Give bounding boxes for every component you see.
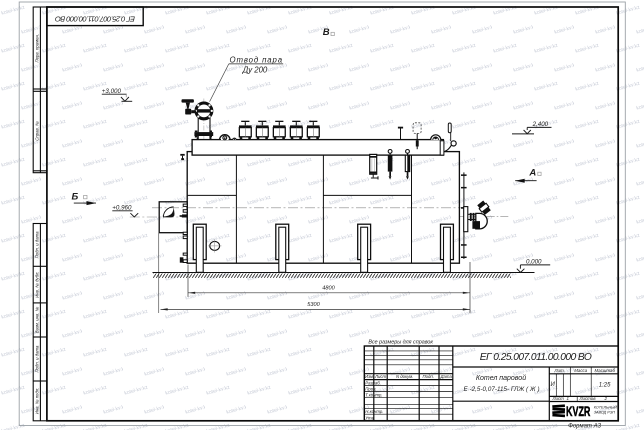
- svg-text:Ду 200: Ду 200: [242, 66, 268, 75]
- svg-text:4800: 4800: [322, 286, 335, 292]
- svg-text:Изм.: Изм.: [365, 374, 374, 379]
- svg-text:Листов: Листов: [579, 396, 597, 401]
- svg-text:KVZR: KVZR: [566, 404, 591, 419]
- svg-text:Подп.: Подп.: [423, 374, 434, 379]
- svg-text:Н.контр.: Н.контр.: [365, 409, 383, 414]
- svg-text:Справ. №: Справ. №: [34, 121, 39, 141]
- svg-text:5300: 5300: [307, 302, 320, 308]
- svg-text:А: А: [528, 167, 536, 178]
- svg-text:1:25: 1:25: [599, 383, 611, 389]
- svg-text:Е -2,5-0,07-115- ГЛЖ ( Ж ): Е -2,5-0,07-115- ГЛЖ ( Ж ): [464, 386, 540, 393]
- svg-text:Лит.: Лит.: [554, 368, 565, 373]
- svg-text:Перв. примен.: Перв. примен.: [34, 34, 39, 63]
- svg-text:ЗАВОД РЭП: ЗАВОД РЭП: [594, 411, 615, 415]
- svg-text:2: 2: [604, 396, 608, 401]
- svg-text:0,000: 0,000: [526, 258, 542, 265]
- svg-text:Подп. и дата: Подп. и дата: [34, 231, 39, 259]
- svg-text:2,400: 2,400: [532, 121, 549, 128]
- svg-text:Отвод пара: Отвод пара: [230, 55, 283, 64]
- svg-text:ЕГ 0.25.007.011.00.000 ВО: ЕГ 0.25.007.011.00.000 ВО: [480, 352, 592, 363]
- svg-text:КОТЕЛЬНЫЙ: КОТЕЛЬНЫЙ: [594, 406, 618, 410]
- svg-text:Масса: Масса: [574, 368, 588, 373]
- svg-text:В: В: [323, 27, 330, 38]
- svg-text:Лист: Лист: [552, 396, 565, 401]
- svg-text:Б: Б: [72, 191, 79, 202]
- svg-text:+3,000: +3,000: [102, 88, 122, 95]
- svg-text:N докум.: N докум.: [396, 374, 413, 379]
- svg-text:Подп. и дата: Подп. и дата: [34, 345, 39, 373]
- svg-text:Взам. инв. №: Взам. инв. №: [34, 306, 39, 333]
- svg-text:Разраб.: Разраб.: [365, 380, 381, 385]
- svg-text:ЕГ 0.25.007.011.00.000 ВО: ЕГ 0.25.007.011.00.000 ВО: [55, 14, 135, 23]
- svg-text:Все размеры для справок: Все размеры для справок: [368, 340, 433, 346]
- svg-text:Утв.: Утв.: [365, 415, 375, 420]
- svg-text:+0,960: +0,960: [112, 205, 132, 212]
- svg-text:Масштаб: Масштаб: [594, 368, 615, 373]
- svg-text:Лист: Лист: [374, 374, 386, 379]
- svg-text:Т.контр.: Т.контр.: [365, 392, 382, 397]
- svg-text:Пров.: Пров.: [365, 386, 376, 391]
- svg-text:Формат А3: Формат А3: [568, 423, 601, 429]
- svg-text:И: И: [551, 382, 556, 388]
- svg-text:Дата: Дата: [440, 374, 453, 379]
- svg-text:Котел паровой: Котел паровой: [476, 374, 526, 382]
- svg-text:Инв. № подл.: Инв. № подл.: [34, 388, 39, 415]
- svg-text:Инв. № дубл.: Инв. № дубл.: [34, 271, 39, 297]
